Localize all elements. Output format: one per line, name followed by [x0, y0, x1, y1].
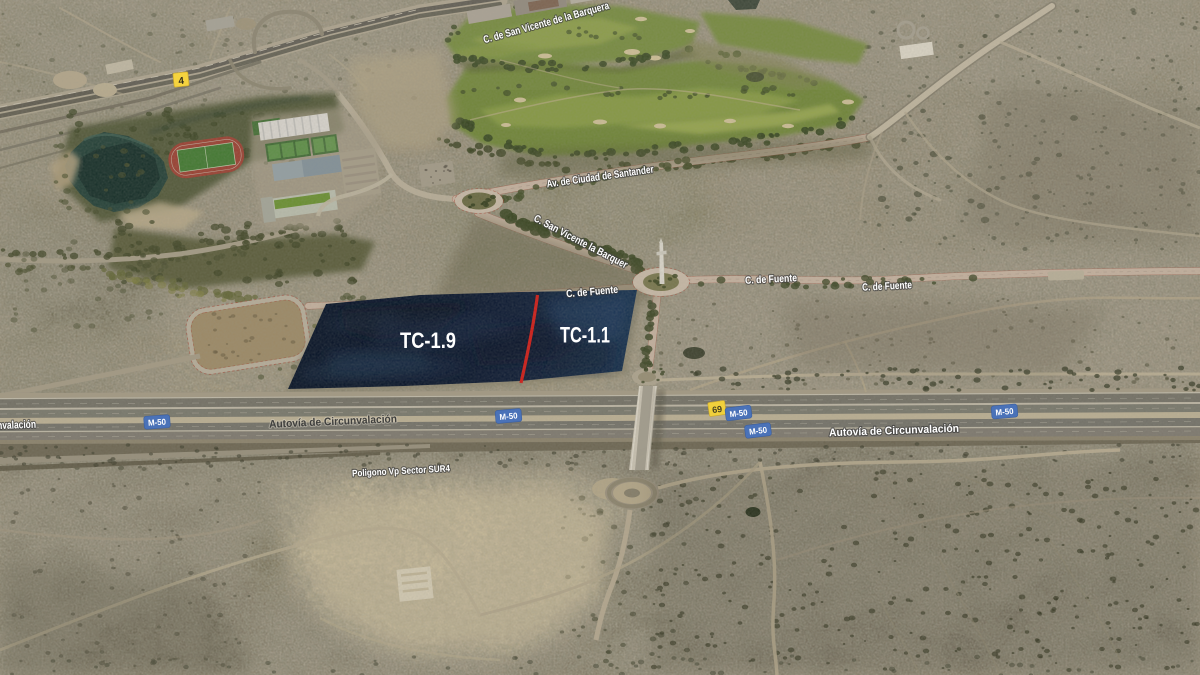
svg-text:69: 69: [711, 404, 722, 415]
svg-text:TC-1.1: TC-1.1: [560, 323, 610, 348]
svg-text:TC-1.9: TC-1.9: [400, 328, 456, 353]
svg-text:M-50: M-50: [995, 406, 1014, 418]
svg-text:M-50: M-50: [499, 410, 518, 422]
svg-text:M-50: M-50: [148, 417, 167, 428]
